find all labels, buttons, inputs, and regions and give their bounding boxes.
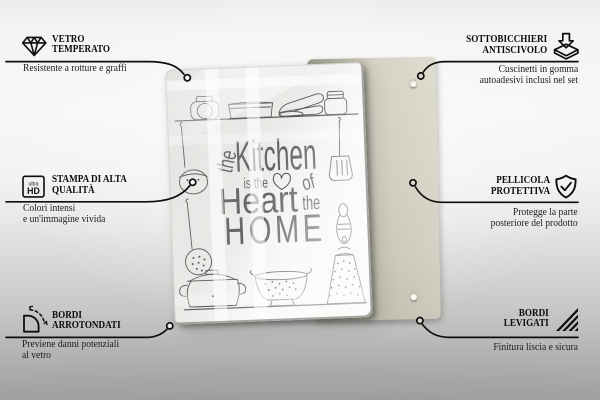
svg-text:HD: HD (27, 186, 40, 196)
